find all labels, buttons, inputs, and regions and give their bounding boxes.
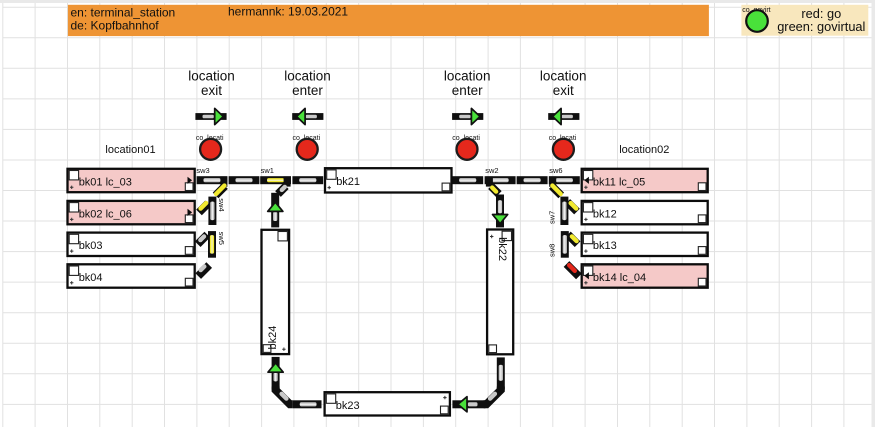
svg-text:exit: exit — [201, 83, 222, 98]
svg-text:bk23: bk23 — [336, 400, 360, 412]
svg-text:location: location — [444, 68, 491, 83]
svg-text:bk03: bk03 — [79, 240, 103, 252]
svg-text:exit: exit — [553, 83, 574, 98]
svg-text:sw2: sw2 — [485, 166, 498, 175]
svg-text:location01: location01 — [105, 144, 155, 156]
svg-text:bk04: bk04 — [79, 272, 103, 284]
svg-text:sw8: sw8 — [547, 244, 556, 257]
svg-text:enter: enter — [452, 83, 483, 98]
svg-text:hermannk: 19.03.2021: hermannk: 19.03.2021 — [228, 5, 348, 19]
svg-text:bk01 lc_03: bk01 lc_03 — [79, 176, 132, 188]
svg-text:sw4: sw4 — [217, 198, 226, 211]
svg-text:bk12: bk12 — [593, 209, 617, 221]
svg-text:green: govirtual: green: govirtual — [777, 19, 865, 34]
svg-text:sw7: sw7 — [547, 211, 556, 224]
svg-text:location: location — [188, 68, 235, 83]
svg-text:location02: location02 — [619, 144, 669, 156]
svg-text:sw3: sw3 — [196, 166, 209, 175]
svg-text:bk21: bk21 — [336, 176, 360, 188]
svg-text:bk02 lc_06: bk02 lc_06 — [79, 209, 132, 221]
svg-text:bk14 lc_04: bk14 lc_04 — [593, 272, 646, 284]
svg-text:bk11 lc_05: bk11 lc_05 — [593, 176, 645, 188]
svg-text:sw6: sw6 — [549, 166, 562, 175]
svg-text:location: location — [284, 68, 331, 83]
svg-text:de: Kopfbahnhof: de: Kopfbahnhof — [71, 18, 160, 32]
svg-text:enter: enter — [292, 83, 323, 98]
svg-text:sw1: sw1 — [261, 166, 274, 175]
svg-text:bk24: bk24 — [267, 326, 279, 350]
svg-text:bk22: bk22 — [496, 237, 508, 261]
svg-text:bk13: bk13 — [593, 240, 617, 252]
svg-text:sw5: sw5 — [217, 232, 226, 245]
svg-text:location: location — [540, 68, 587, 83]
